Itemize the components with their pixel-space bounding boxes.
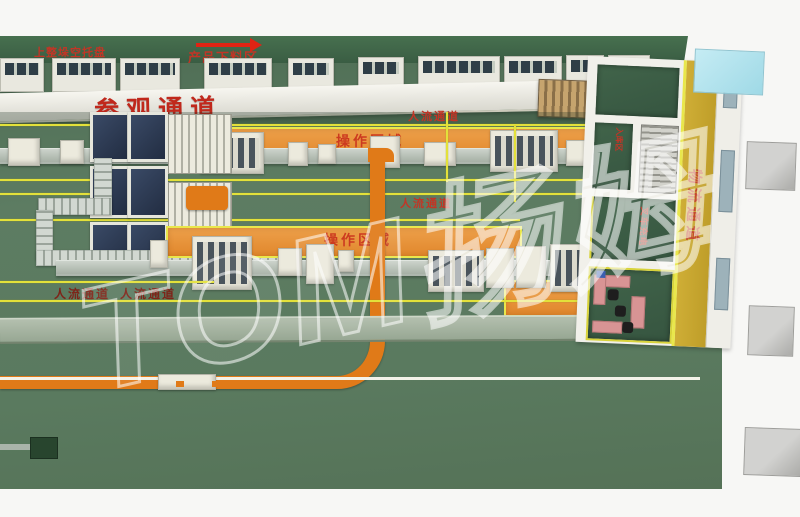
machine-cabinet bbox=[52, 58, 116, 92]
people-corridor-top-label: 人流通道 bbox=[408, 108, 460, 124]
floor-equipment bbox=[30, 437, 58, 459]
machine-cabinet bbox=[0, 58, 44, 92]
machine-cabinet bbox=[120, 58, 180, 92]
office-desk bbox=[592, 320, 622, 333]
dock-block bbox=[743, 427, 800, 477]
floor-equipment-arm bbox=[0, 444, 30, 450]
dock-block bbox=[747, 305, 795, 357]
office-chair bbox=[622, 322, 633, 333]
glass-room bbox=[693, 48, 765, 95]
window bbox=[718, 150, 735, 213]
flow-arrow-icon bbox=[196, 38, 266, 47]
dock-block bbox=[745, 141, 797, 191]
factory-layout-render: 上整垛空托盘 产品下料区 参观通道 人流通道 操作区域 人流通道 bbox=[0, 0, 800, 517]
